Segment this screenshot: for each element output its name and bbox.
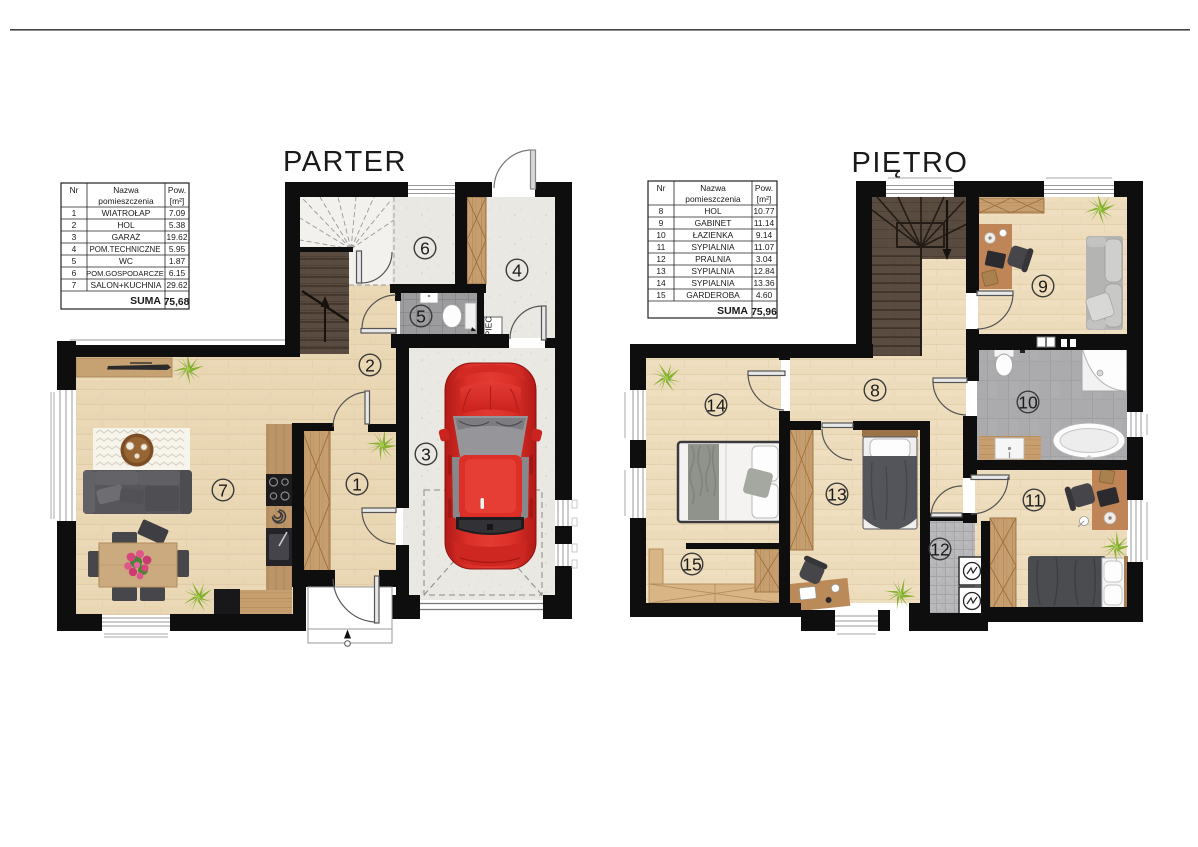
svg-text:5.95: 5.95 xyxy=(169,244,186,254)
svg-text:ŁAZIENKA: ŁAZIENKA xyxy=(693,230,734,240)
svg-text:PIEC: PIEC xyxy=(484,316,494,336)
svg-text:5.38: 5.38 xyxy=(169,220,186,230)
svg-text:1.87: 1.87 xyxy=(169,256,186,266)
svg-text:1: 1 xyxy=(352,475,362,495)
svg-text:7: 7 xyxy=(218,481,228,501)
svg-text:9.14: 9.14 xyxy=(756,230,773,240)
svg-text:Pow.: Pow. xyxy=(755,183,773,193)
svg-text:HOL: HOL xyxy=(704,206,722,216)
svg-text:[m²]: [m²] xyxy=(170,196,184,206)
svg-text:SYPIALNIA: SYPIALNIA xyxy=(691,242,735,252)
svg-text:5: 5 xyxy=(72,256,77,266)
svg-text:8: 8 xyxy=(659,206,664,216)
svg-text:SUMA: SUMA xyxy=(717,305,748,317)
svg-text:GARAŻ: GARAŻ xyxy=(112,232,141,242)
svg-text:Nazwa: Nazwa xyxy=(700,183,726,193)
svg-text:19.62: 19.62 xyxy=(167,232,188,242)
svg-text:11: 11 xyxy=(657,242,666,252)
svg-text:13: 13 xyxy=(827,485,846,505)
svg-text:13.36: 13.36 xyxy=(754,278,775,288)
svg-text:3.04: 3.04 xyxy=(756,254,773,264)
svg-text:[m²]: [m²] xyxy=(757,194,771,204)
svg-text:SYPIALNIA: SYPIALNIA xyxy=(691,278,735,288)
svg-text:10: 10 xyxy=(656,230,666,240)
svg-text:Nr: Nr xyxy=(70,185,79,195)
svg-text:14: 14 xyxy=(706,396,726,416)
svg-text:4: 4 xyxy=(512,261,522,281)
svg-text:10.77: 10.77 xyxy=(754,206,775,216)
svg-text:9: 9 xyxy=(1038,277,1048,297)
svg-text:SALON+KUCHNIA: SALON+KUCHNIA xyxy=(91,280,162,290)
svg-text:pomieszczenia: pomieszczenia xyxy=(98,196,154,206)
svg-text:2: 2 xyxy=(365,356,375,376)
svg-text:5: 5 xyxy=(416,307,426,327)
svg-text:10: 10 xyxy=(1018,393,1038,413)
svg-text:6.15: 6.15 xyxy=(169,268,186,278)
svg-text:11.07: 11.07 xyxy=(754,242,775,252)
svg-text:POM.GOSPODARCZE: POM.GOSPODARCZE xyxy=(86,269,164,278)
svg-text:Pow.: Pow. xyxy=(168,185,186,195)
svg-text:14: 14 xyxy=(656,278,666,288)
svg-text:PARTER: PARTER xyxy=(283,146,407,178)
svg-text:Nr: Nr xyxy=(657,183,666,193)
svg-text:pomieszczenia: pomieszczenia xyxy=(685,194,741,204)
svg-text:29.62: 29.62 xyxy=(167,280,188,290)
svg-text:POM.TECHNICZNE: POM.TECHNICZNE xyxy=(89,245,160,254)
svg-text:75,96: 75,96 xyxy=(751,307,777,318)
svg-text:12.84: 12.84 xyxy=(754,266,775,276)
svg-text:6: 6 xyxy=(420,239,430,259)
svg-text:PRALNIA: PRALNIA xyxy=(695,254,731,264)
svg-text:Nazwa: Nazwa xyxy=(113,185,139,195)
svg-text:WIATROŁAP: WIATROŁAP xyxy=(102,208,151,218)
svg-text:PIĘTRO: PIĘTRO xyxy=(852,147,969,179)
svg-text:4: 4 xyxy=(72,244,77,254)
svg-text:9: 9 xyxy=(659,218,664,228)
svg-text:12: 12 xyxy=(656,254,666,264)
svg-text:7: 7 xyxy=(72,280,77,290)
svg-text:SYPIALNIA: SYPIALNIA xyxy=(691,266,735,276)
svg-text:1: 1 xyxy=(72,208,77,218)
svg-text:SUMA: SUMA xyxy=(130,295,161,307)
svg-text:WC: WC xyxy=(119,256,133,266)
svg-text:11.14: 11.14 xyxy=(754,218,775,228)
svg-text:4.60: 4.60 xyxy=(756,290,773,300)
svg-text:GARDEROBA: GARDEROBA xyxy=(686,290,740,300)
svg-text:6: 6 xyxy=(72,268,77,278)
svg-text:3: 3 xyxy=(72,232,77,242)
svg-text:HOL: HOL xyxy=(117,220,135,230)
svg-text:15: 15 xyxy=(656,290,666,300)
svg-text:7.09: 7.09 xyxy=(169,208,186,218)
svg-text:15: 15 xyxy=(682,555,701,575)
svg-text:2: 2 xyxy=(72,220,77,230)
svg-text:8: 8 xyxy=(870,381,880,401)
svg-text:13: 13 xyxy=(656,266,666,276)
svg-text:75,68: 75,68 xyxy=(164,297,190,308)
svg-text:11: 11 xyxy=(1025,491,1043,511)
svg-text:3: 3 xyxy=(421,445,431,465)
svg-text:GABINET: GABINET xyxy=(695,218,732,228)
svg-text:12: 12 xyxy=(930,540,949,560)
